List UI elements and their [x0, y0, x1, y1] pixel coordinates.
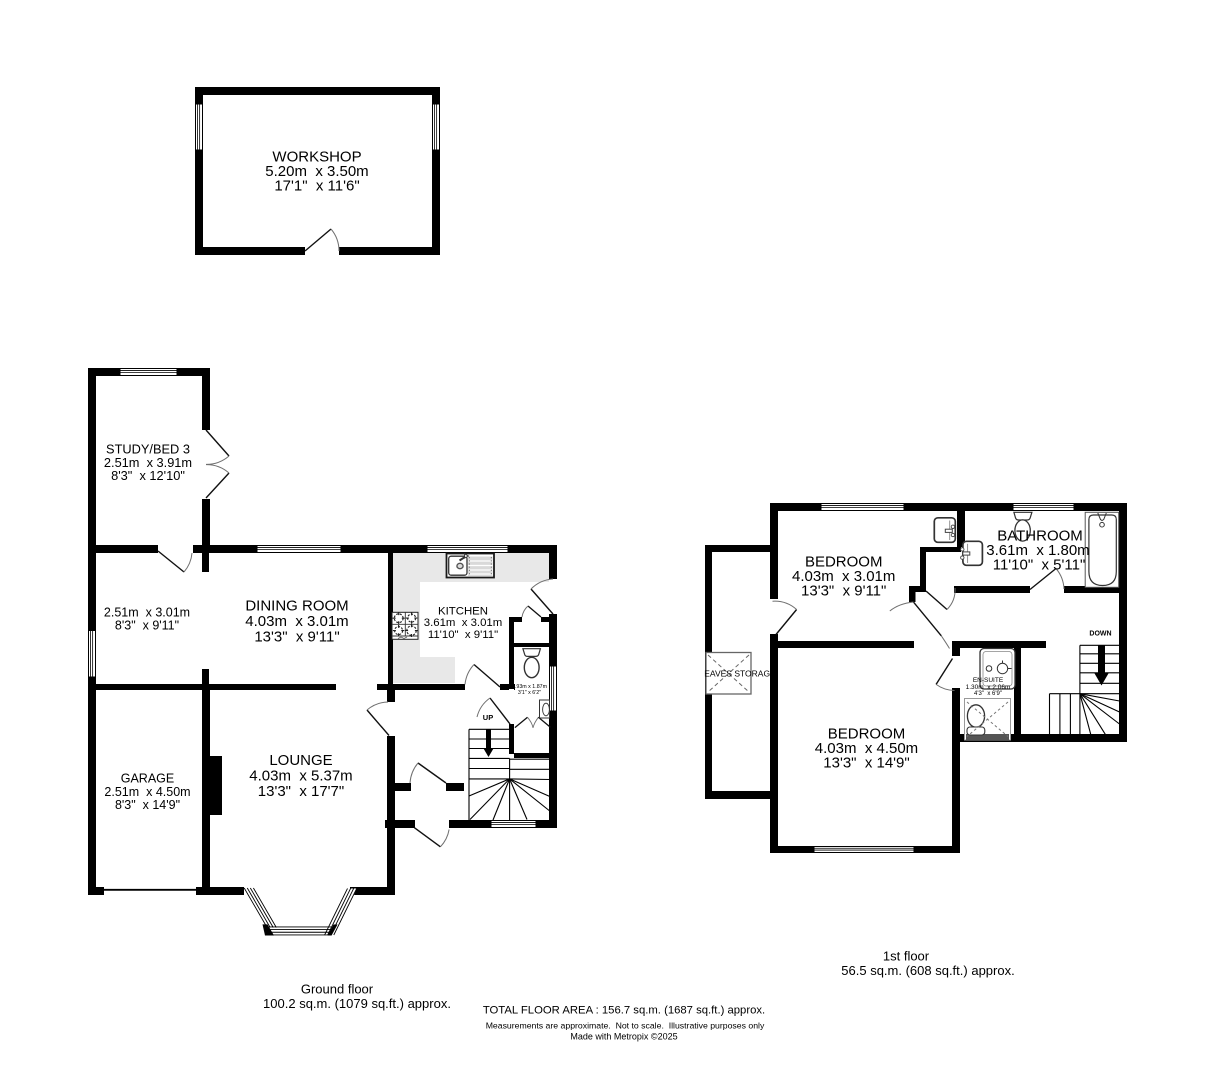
svg-text:8'3" x 14'9": 8'3" x 14'9": [115, 798, 180, 812]
svg-text:Made with Metropix ©2025: Made with Metropix ©2025: [570, 1032, 677, 1042]
svg-text:2.51m x 4.50m: 2.51m x 4.50m: [104, 785, 190, 799]
svg-text:13'3" x 14'9": 13'3" x 14'9": [823, 755, 909, 772]
svg-text:3.61m x 3.01m: 3.61m x 3.01m: [424, 617, 503, 629]
svg-text:UP: UP: [483, 713, 493, 722]
svg-text:13'3" x 9'11": 13'3" x 9'11": [801, 583, 886, 600]
svg-text:4'3" x 6'9": 4'3" x 6'9": [974, 691, 1002, 697]
svg-text:4.03m x 5.37m: 4.03m x 5.37m: [249, 768, 352, 785]
svg-text:11'10" x 9'11": 11'10" x 9'11": [428, 629, 498, 641]
svg-text:100.2 sq.m. (1079 sq.ft.) appr: 100.2 sq.m. (1079 sq.ft.) approx.: [263, 996, 451, 1011]
svg-text:Measurements are approximate.: Measurements are approximate. Not to sca…: [486, 1021, 765, 1031]
svg-text:LOUNGE: LOUNGE: [269, 752, 332, 769]
svg-text:1.30m x 2.06m: 1.30m x 2.06m: [966, 684, 1011, 691]
svg-text:TOTAL FLOOR AREA : 156.7 sq.m.: TOTAL FLOOR AREA : 156.7 sq.m. (1687 sq.…: [483, 1005, 765, 1017]
svg-text:13'3" x 9'11": 13'3" x 9'11": [254, 629, 339, 646]
svg-text:KITCHEN: KITCHEN: [438, 606, 488, 618]
svg-text:11'10" x 5'11": 11'10" x 5'11": [993, 557, 1086, 574]
svg-text:2.51m x 3.01m: 2.51m x 3.01m: [104, 606, 190, 620]
svg-text:GARAGE: GARAGE: [121, 772, 175, 786]
svg-text:EAVES STORAGE: EAVES STORAGE: [704, 669, 776, 679]
svg-text:13'3" x 17'7": 13'3" x 17'7": [258, 783, 344, 800]
svg-text:17'1" x 11'6": 17'1" x 11'6": [274, 178, 359, 195]
svg-text:DINING ROOM: DINING ROOM: [245, 598, 348, 615]
svg-text:8'3" x 12'10": 8'3" x 12'10": [111, 468, 185, 483]
svg-text:EN-SUITE: EN-SUITE: [973, 677, 1004, 684]
svg-text:8'3" x 9'11": 8'3" x 9'11": [115, 619, 179, 633]
svg-text:1st floor: 1st floor: [883, 949, 930, 964]
svg-text:Ground floor: Ground floor: [301, 982, 374, 997]
svg-text:56.5 sq.m. (608 sq.ft.) approx: 56.5 sq.m. (608 sq.ft.) approx.: [841, 963, 1014, 978]
svg-text:DOWN: DOWN: [1089, 631, 1111, 638]
svg-text:3'1" x 6'2": 3'1" x 6'2": [518, 690, 541, 696]
svg-text:4.03m x 3.01m: 4.03m x 3.01m: [245, 613, 348, 630]
